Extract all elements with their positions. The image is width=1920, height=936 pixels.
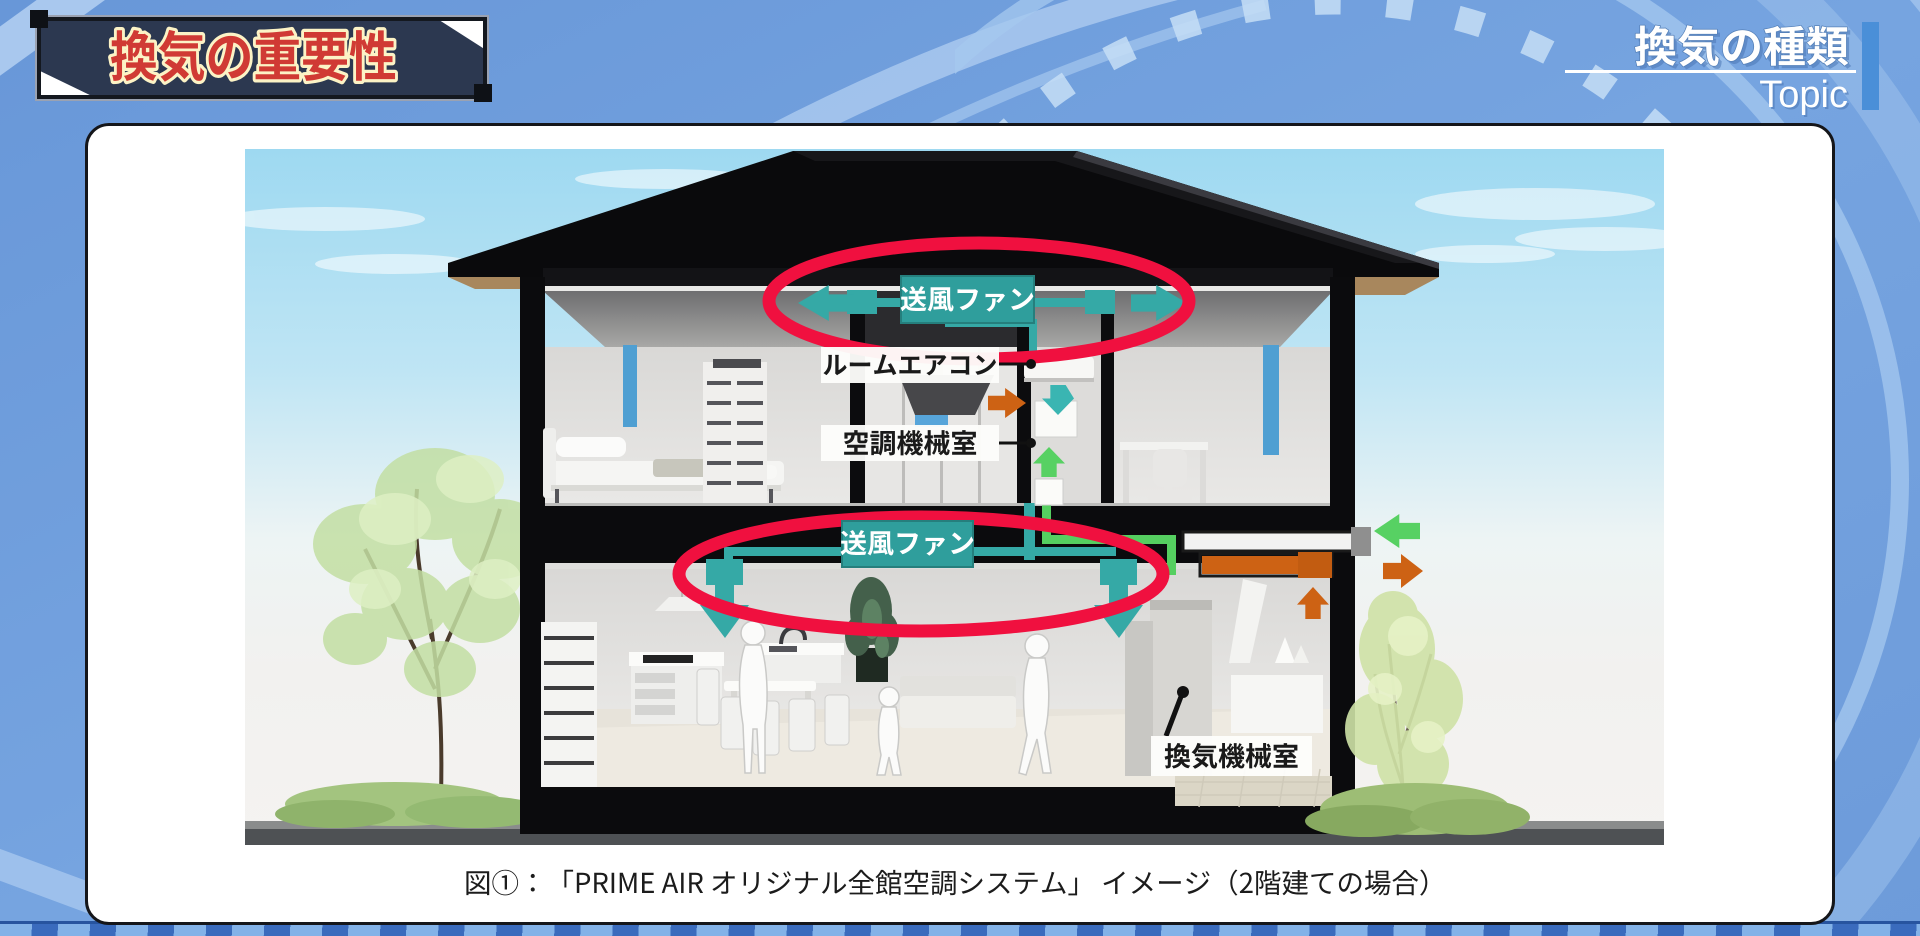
svg-text:Topic: Topic — [1759, 74, 1848, 116]
